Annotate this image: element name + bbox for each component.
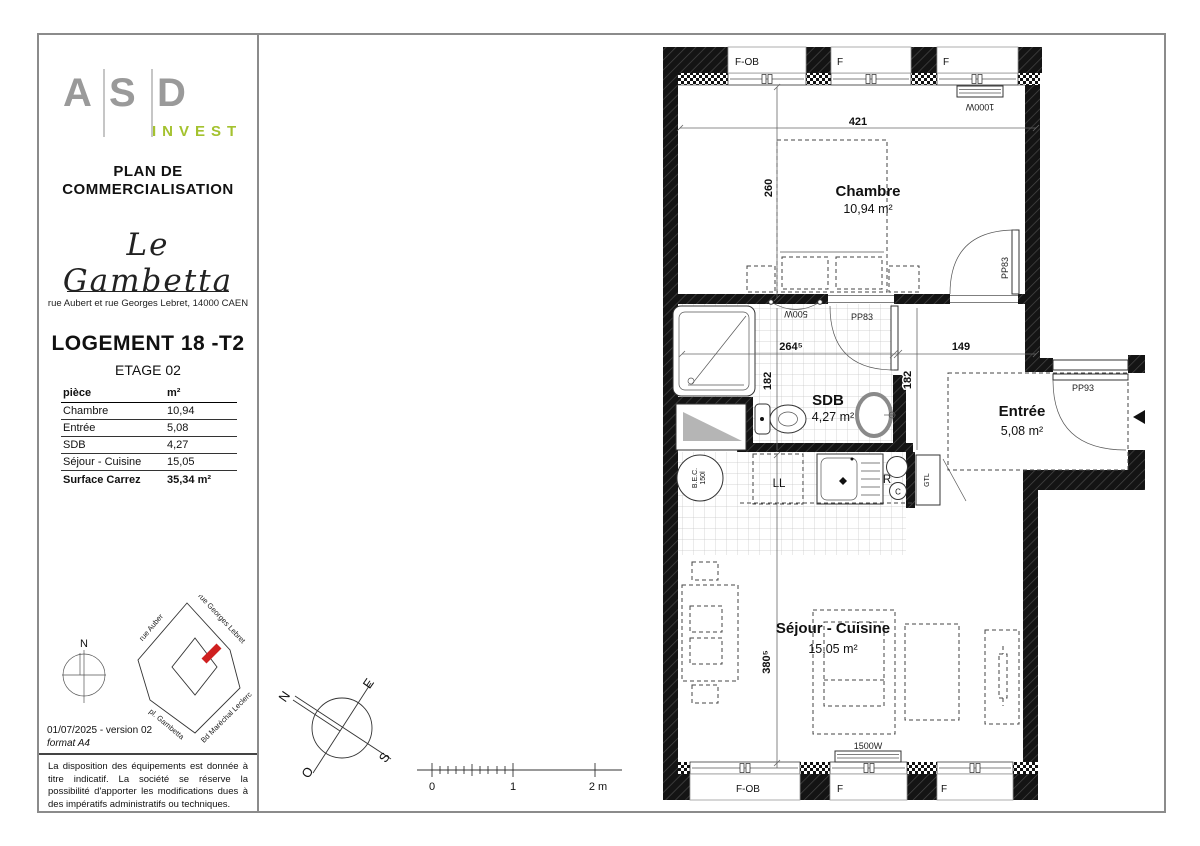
cell-area: 4,27: [165, 437, 237, 454]
street-rue-auber: rue Auber: [137, 612, 165, 643]
radiator-label-500w: 500W: [784, 309, 808, 319]
dim-182-sdb: 182: [762, 372, 774, 390]
entree-boundary: [948, 373, 1128, 470]
low-table: [905, 624, 959, 720]
table-row: SDB 4,27: [61, 437, 237, 454]
water-heater-capacity: 150l: [700, 471, 707, 485]
chambre-radiator: 1000W: [957, 86, 1003, 112]
window-label-fob-bottom: F-OB: [736, 784, 760, 795]
logo-invest-label: INVEST: [152, 123, 242, 140]
windows-bottom: F-OB F F: [690, 762, 1013, 800]
compass-o: O: [298, 764, 316, 781]
cell-room: SDB: [61, 437, 165, 454]
unit-title: LOGEMENT 18 -T2: [39, 332, 257, 356]
logo-letter-d: D: [157, 73, 186, 113]
total-label: Surface Carrez: [61, 471, 165, 489]
cell-room: Chambre: [61, 403, 165, 420]
bed: [747, 140, 919, 292]
col-header-m2: m²: [165, 385, 237, 403]
cell-area: 5,08: [165, 420, 237, 437]
street-bd-marechal-leclerc: Bd Maréchal Leclerc: [199, 690, 254, 745]
mini-compass-icon: N: [62, 638, 106, 703]
shower: [673, 306, 755, 396]
room-area-sejour: 15,05 m²: [808, 642, 857, 656]
doc-title-line2: COMMERCIALISATION: [39, 181, 257, 199]
logo-letter-s: S: [109, 73, 136, 113]
room-label-entree: Entrée: [999, 403, 1046, 420]
window-label-fob-top: F-OB: [735, 57, 759, 68]
logo-letter-a: A: [63, 73, 92, 113]
door-label-pp83-chambre: PP83: [1000, 257, 1010, 279]
closet-door: [943, 459, 966, 501]
doc-title-line1: PLAN DE: [39, 163, 257, 181]
cell-room: Entrée: [61, 420, 165, 437]
scale-2m: 2 m: [589, 781, 607, 793]
plan-sheet: A S D INVEST PLAN DE COMMERCIALISATION L…: [37, 33, 1166, 813]
scale-bar: 0 1 2 m: [417, 763, 622, 793]
table-row: Séjour - Cuisine 15,05: [61, 454, 237, 471]
total-value: 35,34 m²: [165, 471, 237, 489]
nightstand: [747, 266, 775, 292]
room-label-sejour: Séjour - Cuisine: [776, 620, 890, 637]
col-header-piece: pièce: [61, 385, 165, 403]
windows-top: F-OB F F: [728, 47, 1018, 85]
compass-s: S: [376, 749, 393, 765]
window-label-f-top: F: [837, 57, 843, 68]
mini-compass-n-label: N: [80, 638, 88, 650]
entry-arrow-icon: [1133, 410, 1145, 424]
kitchen-sink: [817, 454, 883, 504]
washing-machine-label: LL: [773, 478, 786, 490]
logo-divider: [103, 69, 105, 137]
floor-label: ETAGE 02: [39, 362, 257, 378]
location-sketch: rue Auber rue Georges Lebret pl. Gambett…: [137, 595, 254, 745]
radiator-label-1500w: 1500W: [854, 741, 883, 751]
residence-name: Le Gambetta: [39, 227, 257, 299]
cooktop-label: C: [895, 488, 901, 497]
format-label: format A4: [47, 738, 90, 749]
compass-e: E: [360, 675, 377, 691]
street-rue-georges-lebret: rue Georges Lebret: [196, 595, 248, 646]
water-heater-label: B.E.C.: [692, 468, 699, 488]
scale-0: 0: [429, 781, 435, 793]
room-label-sdb: SDB: [812, 392, 844, 409]
room-label-chambre: Chambre: [835, 183, 900, 200]
compass-rose-icon: N E S O: [275, 675, 393, 781]
cell-room: Séjour - Cuisine: [61, 454, 165, 471]
door-label-pp83-sdb: PP83: [851, 312, 873, 322]
fridge-label: R: [883, 474, 891, 486]
door-chambre: PP83: [950, 230, 1019, 303]
window-label-f-bottom: F: [837, 784, 843, 795]
floor-plan: F-OB F F F-OB F F PP83: [259, 35, 1164, 811]
tv-stand: [985, 630, 1019, 724]
window-label-f-bottom: F: [941, 784, 947, 795]
dim-182-hall: 182: [902, 371, 914, 389]
dim-260: 260: [763, 179, 775, 197]
vanity-unit: [676, 404, 746, 450]
room-area-entree: 5,08 m²: [1001, 424, 1043, 438]
toilet: [755, 404, 806, 434]
version-label: 01/07/2025 - version 02: [47, 725, 152, 736]
table-header-row: pièce m²: [61, 385, 237, 403]
room-area-chambre: 10,94 m²: [843, 202, 892, 216]
sejour-radiator: 1500W: [835, 741, 901, 762]
cell-area: 10,94: [165, 403, 237, 420]
table-row: Chambre 10,94: [61, 403, 237, 420]
window-label-f-top: F: [943, 57, 949, 68]
radiator-label-1000w: 1000W: [965, 102, 994, 112]
room-area-sdb: 4,27 m²: [812, 410, 854, 424]
sidebar: A S D INVEST PLAN DE COMMERCIALISATION L…: [39, 35, 259, 811]
dim-380-5: 380⁵: [761, 650, 773, 674]
table-total-row: Surface Carrez 35,34 m²: [61, 471, 237, 489]
address: rue Aubert et rue Georges Lebret, 14000 …: [39, 298, 257, 309]
dim-264-5: 264⁵: [779, 341, 803, 353]
area-table: pièce m² Chambre 10,94 Entrée 5,08 SDB 4…: [61, 385, 237, 488]
cooktop-burner: [887, 457, 908, 478]
gtl-label: GTL: [924, 473, 931, 487]
table-row: Entrée 5,08: [61, 420, 237, 437]
nightstand: [889, 266, 919, 292]
cell-area: 15,05: [165, 454, 237, 471]
scale-1: 1: [510, 781, 516, 793]
dim-421: 421: [849, 116, 867, 128]
divider: [67, 291, 229, 292]
door-label-pp93: PP93: [1072, 383, 1094, 393]
dim-149: 149: [952, 341, 970, 353]
disclaimer-text: La disposition des équipements est donné…: [39, 753, 257, 811]
compass-n: N: [275, 688, 293, 704]
dining-set: [682, 562, 738, 703]
